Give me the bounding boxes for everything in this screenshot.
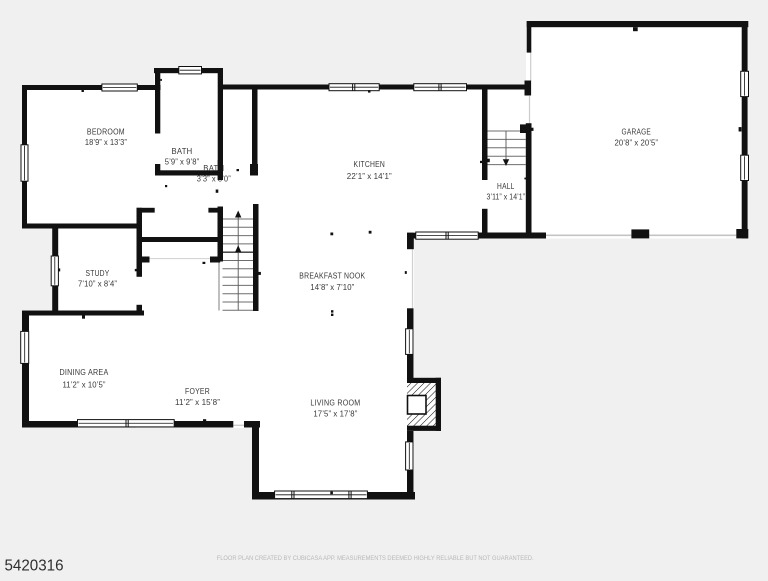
svg-text:7’10” x 8’4”: 7’10” x 8’4” xyxy=(78,279,117,289)
svg-text:BREAKFAST NOOK: BREAKFAST NOOK xyxy=(299,271,365,281)
svg-text:STUDY: STUDY xyxy=(86,268,110,278)
svg-text:DINING AREA: DINING AREA xyxy=(60,367,109,377)
svg-text:FLOOR PLAN CREATED BY CUBICASA: FLOOR PLAN CREATED BY CUBICASA APP. MEAS… xyxy=(217,555,534,562)
svg-text:BEDROOM: BEDROOM xyxy=(87,126,125,136)
svg-text:KITCHEN: KITCHEN xyxy=(354,159,386,169)
svg-text:17’5” x 17’8”: 17’5” x 17’8” xyxy=(313,408,357,418)
svg-text:BATH: BATH xyxy=(172,146,193,156)
svg-text:LIVING ROOM: LIVING ROOM xyxy=(310,398,360,408)
svg-text:11’2” x 15’8”: 11’2” x 15’8” xyxy=(175,397,220,407)
svg-text:GARAGE: GARAGE xyxy=(622,127,652,137)
svg-text:11’2” x 10’5”: 11’2” x 10’5” xyxy=(63,379,106,389)
svg-text:20’8” x 20’5”: 20’8” x 20’5” xyxy=(615,138,659,148)
svg-text:5’9” x 9’8”: 5’9” x 9’8” xyxy=(165,156,200,166)
svg-text:5420316: 5420316 xyxy=(5,558,64,575)
svg-text:3’3” x 8’0”: 3’3” x 8’0” xyxy=(197,174,231,184)
svg-text:FOYER: FOYER xyxy=(185,386,210,396)
svg-text:3’11” x 14’1”: 3’11” x 14’1” xyxy=(487,191,526,201)
svg-text:14’8” x 7’10”: 14’8” x 7’10” xyxy=(310,282,354,292)
svg-text:18’9” x 13’3”: 18’9” x 13’3” xyxy=(85,137,127,147)
svg-text:HALL: HALL xyxy=(497,181,515,191)
svg-text:22’1” x 14’1”: 22’1” x 14’1” xyxy=(347,171,392,181)
